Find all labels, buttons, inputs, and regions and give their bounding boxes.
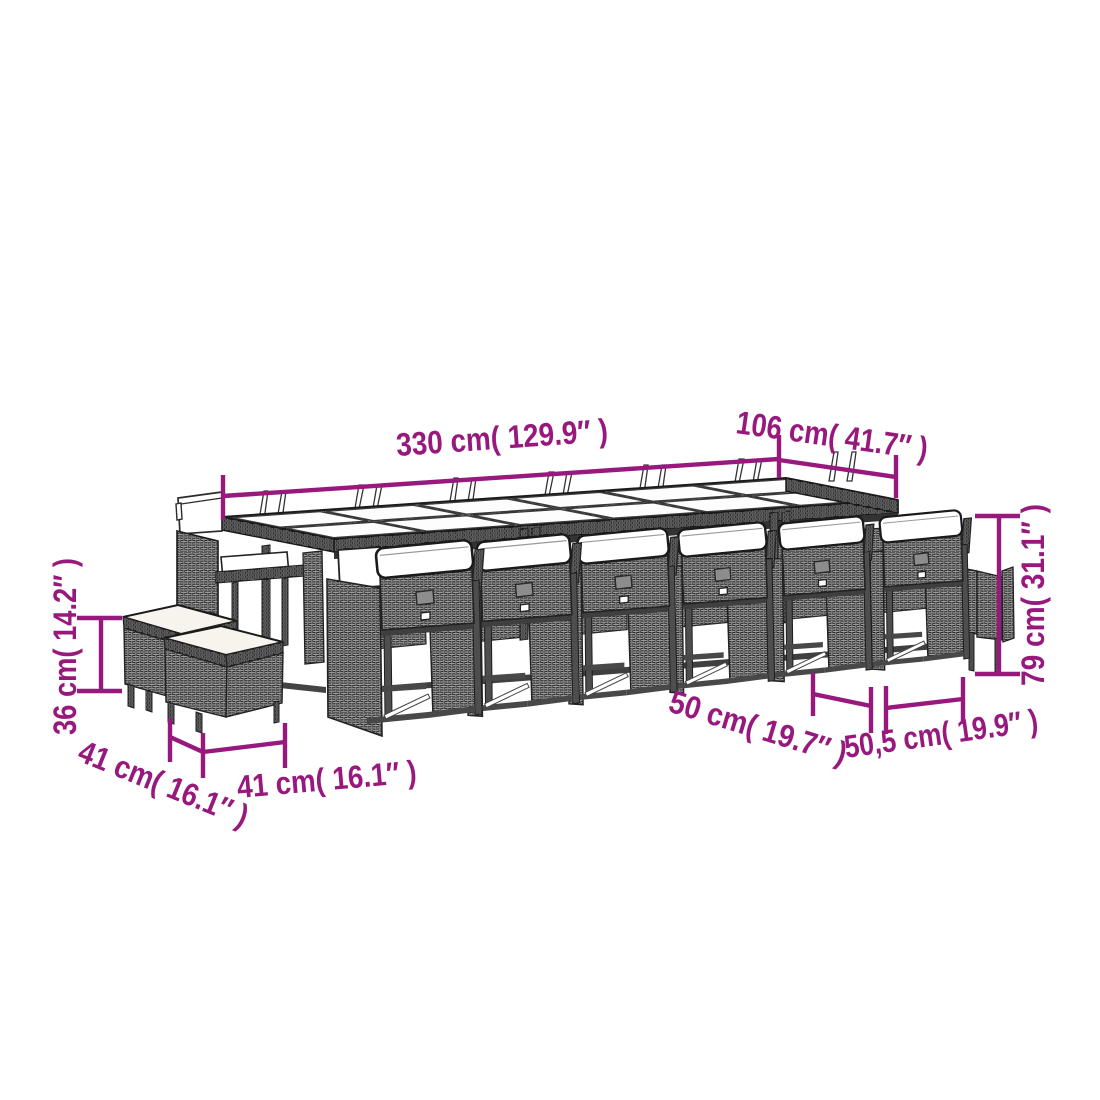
svg-text:36 cm( 14.2″ ): 36 cm( 14.2″ ) [47, 558, 83, 735]
svg-text:330 cm( 129.9″ ): 330 cm( 129.9″ ) [395, 412, 609, 463]
svg-text:41 cm( 16.1″ ): 41 cm( 16.1″ ) [235, 753, 417, 805]
svg-text:106 cm( 41.7″ ): 106 cm( 41.7″ ) [734, 404, 930, 467]
svg-text:79 cm( 31.1″ ): 79 cm( 31.1″ ) [1015, 504, 1051, 686]
